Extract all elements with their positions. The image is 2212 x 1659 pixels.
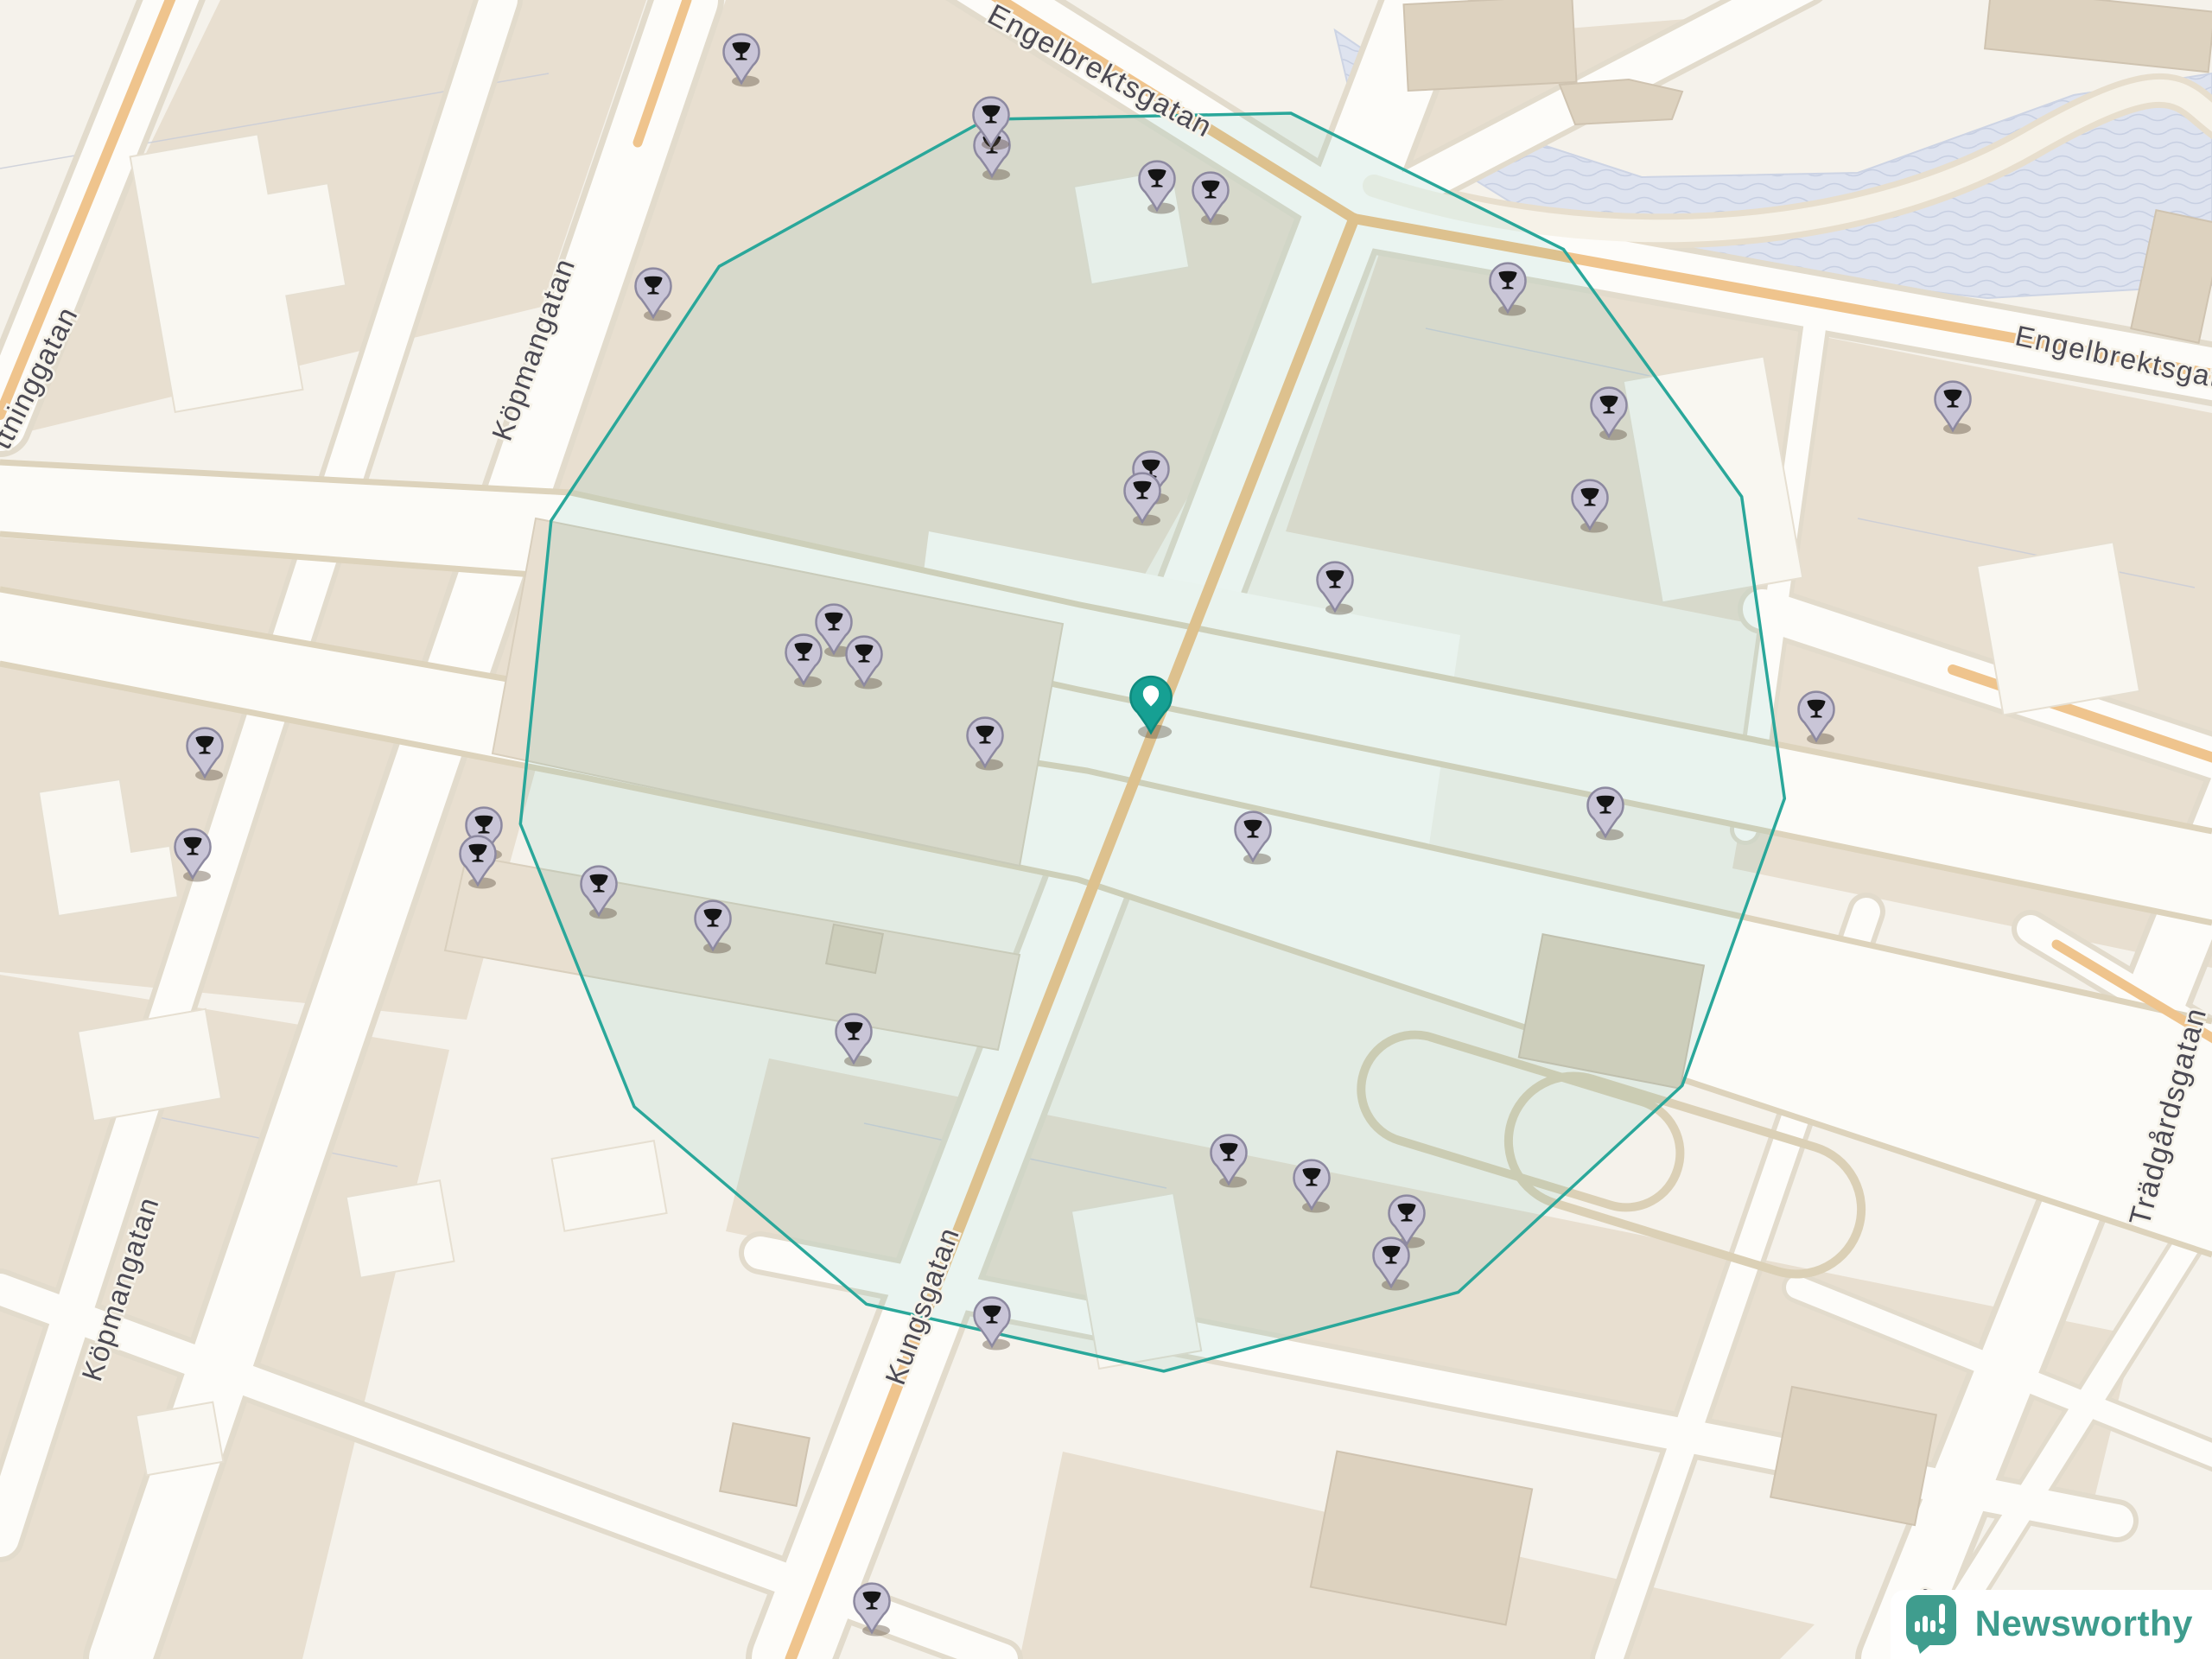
map-canvas[interactable]: EngelbrektsgatanEngelbrektsgatanttningga… bbox=[0, 0, 2212, 1659]
newsworthy-logo-text: Newsworthy bbox=[1975, 1603, 2193, 1644]
map-viewport[interactable]: EngelbrektsgatanEngelbrektsgatanttningga… bbox=[0, 0, 2212, 1659]
newsworthy-logo-icon bbox=[1904, 1593, 1961, 1654]
newsworthy-logo[interactable]: Newsworthy bbox=[1891, 1590, 2212, 1659]
